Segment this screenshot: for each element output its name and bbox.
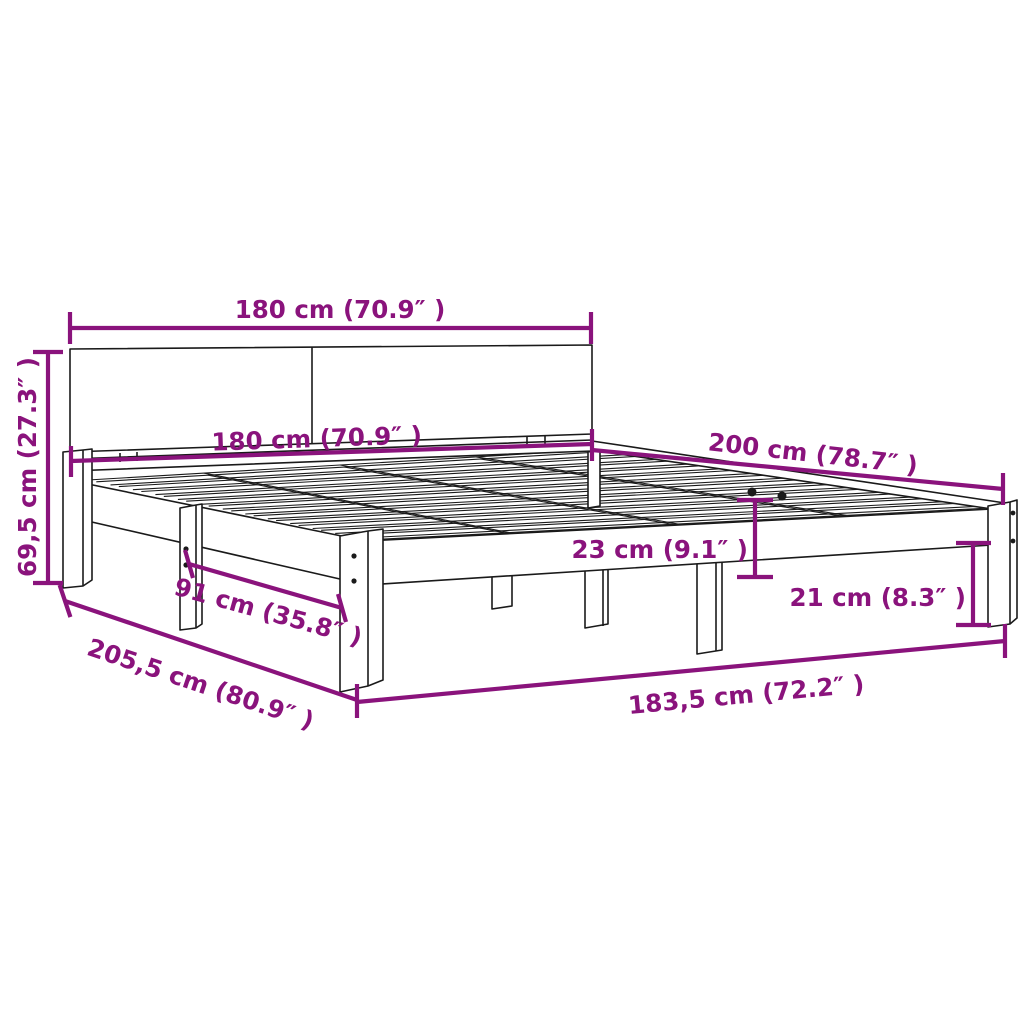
dim-frame-height-label: 23 cm (9.1″ ) [572, 535, 748, 564]
diagram-canvas: 180 cm (70.9″ ) 180 cm (70.9″ ) 200 cm (… [0, 0, 1024, 1024]
screw-dot [1011, 511, 1016, 516]
screw-dot [351, 553, 356, 558]
center-leg-3 [697, 555, 722, 654]
dim-leg-height-label: 21 cm (8.3″ ) [790, 583, 966, 612]
foot-right-leg [988, 500, 1017, 627]
dim-headboard-width-label: 180 cm (70.9″ ) [235, 295, 446, 324]
dim-total-width: 183,5 cm (72.2″ ) [357, 624, 1005, 720]
screw-dot [351, 578, 356, 583]
dim-headboard-height-label: 69,5 cm (27.3″ ) [13, 357, 42, 577]
left-side-rail [83, 483, 366, 585]
bed-frame-dimension-diagram: 180 cm (70.9″ ) 180 cm (70.9″ ) 200 cm (… [0, 0, 1024, 1024]
screw-dot [1011, 539, 1016, 544]
headboard-left-leg [63, 449, 92, 588]
foot-left-leg [340, 529, 383, 692]
dim-total-width-label: 183,5 cm (72.2″ ) [627, 669, 866, 720]
center-leg-2 [585, 562, 608, 628]
dim-headboard-height: 69,5 cm (27.3″ ) [13, 352, 63, 583]
slat-knob [748, 488, 757, 497]
dim-headboard-width: 180 cm (70.9″ ) [70, 295, 591, 344]
slat-knob [778, 492, 787, 501]
